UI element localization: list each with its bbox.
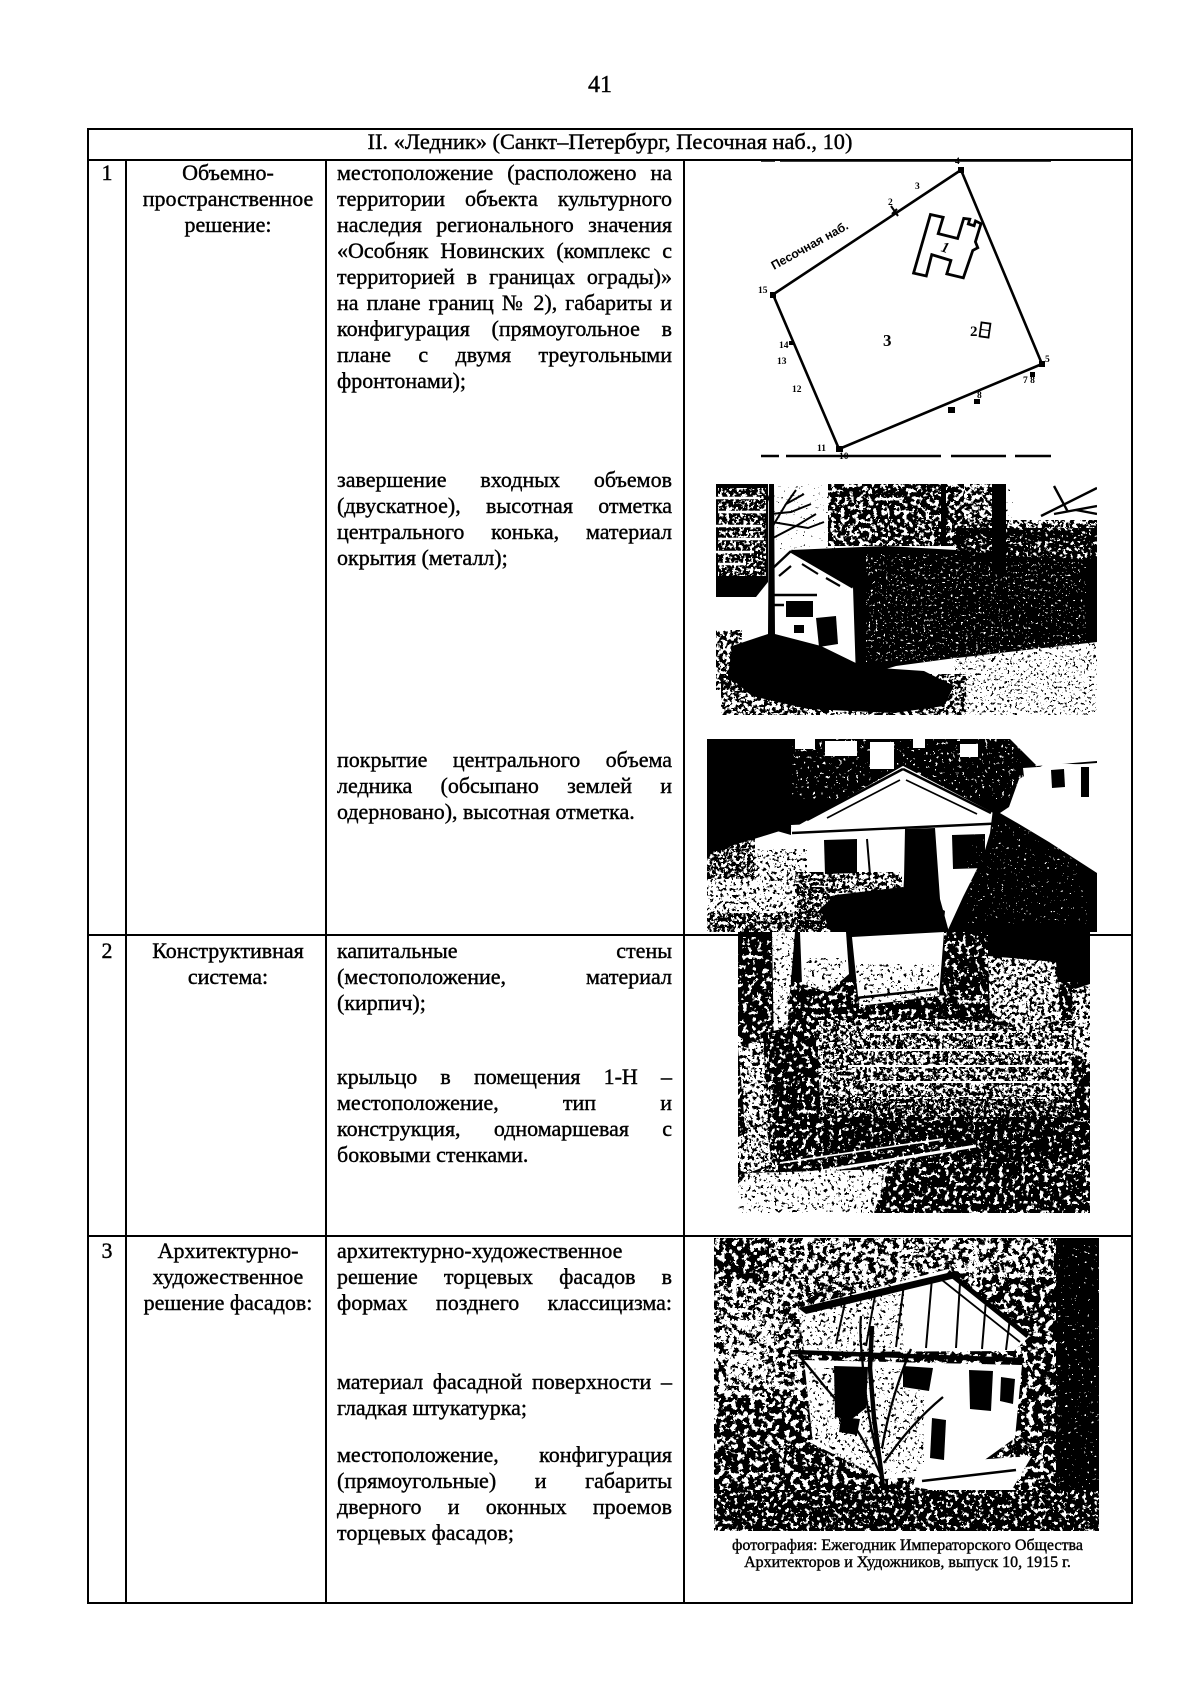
svg-text:2: 2: [970, 324, 978, 340]
svg-text:12: 12: [792, 385, 802, 395]
svg-text:3: 3: [883, 331, 892, 350]
svg-text:5: 5: [1045, 355, 1050, 365]
svg-text:3: 3: [915, 182, 920, 192]
svg-text:4: 4: [955, 157, 960, 167]
svg-text:2: 2: [888, 198, 893, 208]
svg-text:13: 13: [777, 357, 787, 367]
svg-text:14: 14: [779, 341, 789, 351]
svg-text:7 8: 7 8: [1023, 376, 1035, 386]
svg-text:15: 15: [758, 286, 768, 296]
svg-text:11: 11: [817, 444, 826, 454]
svg-text:Песочная наб.: Песочная наб.: [769, 219, 851, 273]
svg-text:8: 8: [977, 391, 982, 401]
